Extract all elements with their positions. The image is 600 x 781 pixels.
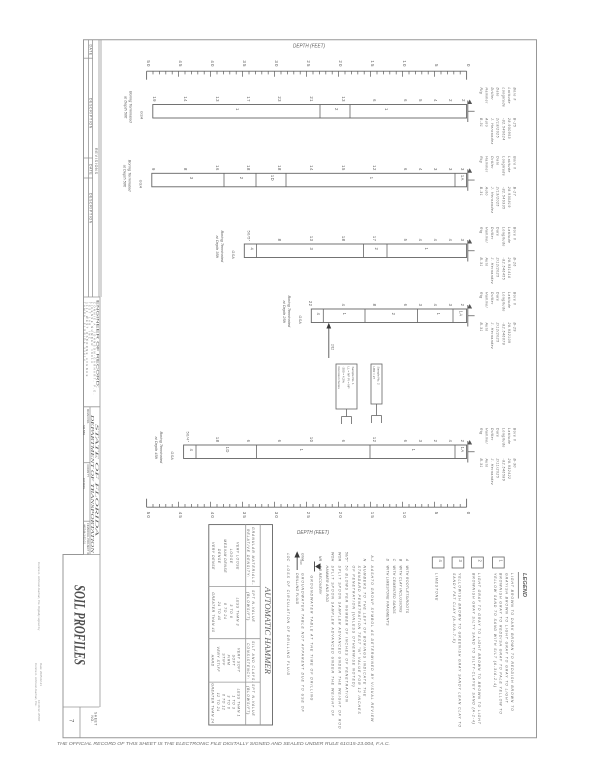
svg-text:B-31: B-31 <box>479 459 483 468</box>
svg-text:Date: Date <box>496 292 500 301</box>
svg-text:0: 0 <box>466 512 471 516</box>
svg-text:DRILLING FLUID: DRILLING FLUID <box>295 573 299 605</box>
svg-text:NO RECOVERY: NO RECOVERY <box>318 566 322 595</box>
svg-text:Hammer: Hammer <box>485 88 489 105</box>
svg-text:18: 18 <box>246 165 251 171</box>
svg-text:SANDY FAT CLAY (A-6/A-7-6): SANDY FAT CLAY (A-6/A-7-6) <box>452 573 456 644</box>
svg-text:-82.546455: -82.546455 <box>501 258 505 281</box>
svg-text:28.931416: 28.931416 <box>507 257 511 279</box>
svg-text:ROAD NO.: ROAD NO. <box>86 409 90 424</box>
svg-text:COUNTY: COUNTY <box>86 465 90 478</box>
svg-text:2: 2 <box>461 99 466 102</box>
svg-text:Date: Date <box>496 428 500 437</box>
svg-text:2: 2 <box>433 440 438 443</box>
svg-text:3: 3 <box>433 168 438 171</box>
svg-text:Hammer: Hammer <box>485 227 489 244</box>
svg-text:21: 21 <box>309 96 314 102</box>
svg-text:GSA: GSA <box>231 251 235 260</box>
svg-text:WITH CLAY INCLUSIONS: WITH CLAY INCLUSIONS <box>398 566 402 613</box>
svg-text:SPLIT SPOON SAMPLER ADVANCED U: SPLIT SPOON SAMPLER ADVANCED UNDER THE W… <box>337 566 341 730</box>
svg-text:15: 15 <box>341 165 346 171</box>
svg-text:8: 8 <box>372 304 377 307</box>
svg-text:Longitude: Longitude <box>501 428 505 448</box>
svg-text:REVISIONS: REVISIONS <box>94 148 98 175</box>
svg-text:GREATER THAN 40: GREATER THAN 40 <box>211 592 215 632</box>
svg-text:19: 19 <box>152 96 157 102</box>
svg-text:FIRM: FIRM <box>226 655 230 666</box>
svg-text:2: 2 <box>391 313 396 316</box>
svg-text:SPLIT SPOON SAMPLER ADVANCED U: SPLIT SPOON SAMPLER ADVANCED UNDER THE W… <box>330 566 334 717</box>
svg-text:5: 5 <box>434 512 439 516</box>
svg-text:2/18/2025: 2/18/2025 <box>496 117 500 138</box>
svg-text:40: 40 <box>210 60 215 67</box>
svg-text:Rig: Rig <box>479 428 483 435</box>
svg-text:WITH ROOTLETS/ROOTS: WITH ROOTLETS/ROOTS <box>405 566 409 614</box>
svg-text:Rig: Rig <box>479 156 483 163</box>
svg-text:28.932422: 28.932422 <box>507 458 511 480</box>
svg-text:(BLOWS/FT): (BLOWS/FT) <box>246 686 250 715</box>
svg-text:LEGEND: LEGEND <box>521 573 527 597</box>
svg-text:MEDIUM DENSE: MEDIUM DENSE <box>223 539 227 573</box>
svg-text:2: 2 <box>334 108 339 111</box>
svg-text:24 TO 40: 24 TO 40 <box>217 601 221 621</box>
svg-text:Hammer: Hammer <box>485 156 489 173</box>
svg-text:-82.546624: -82.546624 <box>501 118 505 141</box>
svg-text:J. Hernandez: J. Hernandez <box>490 186 494 214</box>
svg-text:LBR = 27: LBR = 27 <box>372 367 376 380</box>
svg-text:B-31: B-31 <box>479 118 483 127</box>
svg-text:50/4": 50/4" <box>185 432 190 443</box>
svg-text:LOC: LOC <box>286 553 290 561</box>
svg-text:3: 3 <box>418 304 423 307</box>
svg-text:10: 10 <box>402 60 407 67</box>
svg-text:J. Hernandez: J. Hernandez <box>490 257 494 285</box>
svg-text:LESS THAN 3: LESS THAN 3 <box>235 598 239 626</box>
svg-text:Date: Date <box>496 156 500 165</box>
svg-text:4: 4 <box>316 313 321 316</box>
svg-text:at Depth 25ft: at Depth 25ft <box>282 301 287 324</box>
svg-text:LIGHT BROWN TO DARK BROWN TO R: LIGHT BROWN TO DARK BROWN TO REDDISH BRO… <box>510 573 514 712</box>
svg-text:GREATER THAN 24: GREATER THAN 24 <box>210 683 214 723</box>
svg-text:3: 3 <box>189 177 194 180</box>
svg-text:3: 3 <box>460 168 465 171</box>
svg-text:-82.546335: -82.546335 <box>501 187 505 210</box>
svg-text:35: 35 <box>242 60 247 67</box>
svg-text:Rig: Rig <box>479 292 483 299</box>
svg-text:14: 14 <box>309 165 314 171</box>
svg-text:GSA: GSA <box>139 111 143 120</box>
svg-text:2: 2 <box>460 440 465 443</box>
svg-text:Connie A. Johnson-Garhart, P.E: Connie A. Johnson-Garhart, P.E. Digitall… <box>37 562 41 631</box>
svg-text:1: 1 <box>436 313 441 316</box>
svg-text:16: 16 <box>215 165 220 171</box>
svg-text:Hammer: Hammer <box>485 292 489 309</box>
svg-text:Date: 2025.02.21: Date: 2025.02.21 <box>39 663 43 686</box>
svg-text:DEPTH (FEET): DEPTH (FEET) <box>293 44 325 50</box>
svg-text:Sample No. 1: Sample No. 1 <box>351 367 355 386</box>
svg-text:8: 8 <box>277 239 282 242</box>
svg-text:40: 40 <box>210 512 215 519</box>
svg-text:D: D <box>385 559 389 562</box>
svg-text:Rig: Rig <box>479 88 483 95</box>
svg-text:DESCRIPTION: DESCRIPTION <box>89 193 93 224</box>
svg-text:LOOSE: LOOSE <box>229 549 233 564</box>
svg-text:28.932109: 28.932109 <box>507 322 511 344</box>
svg-text:DATE: DATE <box>89 164 93 175</box>
svg-text:4: 4 <box>341 304 346 307</box>
svg-text:STATE OF FLORIDA: STATE OF FLORIDA <box>95 424 99 538</box>
svg-text:Auto: Auto <box>485 458 489 468</box>
svg-text:NUMBERS TO THE LEFT OF BORINGS: NUMBERS TO THE LEFT OF BORINGS INDICATE … <box>362 566 366 698</box>
svg-text:30: 30 <box>274 60 279 67</box>
svg-text:WOH: WOH <box>330 552 334 562</box>
svg-text:Latitude: Latitude <box>507 292 511 308</box>
svg-text:CITRUS: CITRUS <box>82 478 86 489</box>
svg-text:Bore #: Bore # <box>513 156 517 169</box>
svg-text:13: 13 <box>215 96 220 102</box>
svg-text:SPT N-VALUE: SPT N-VALUE <box>251 684 255 717</box>
svg-text:LESS THAN 1: LESS THAN 1 <box>236 689 240 717</box>
svg-text:15: 15 <box>370 512 375 519</box>
svg-text:2/12: 2/12 <box>331 344 335 350</box>
svg-text:45: 45 <box>178 512 183 519</box>
svg-text:5: 5 <box>403 239 408 242</box>
svg-text:1: 1 <box>342 313 347 316</box>
svg-text:4: 4 <box>418 239 423 242</box>
svg-text:YELLOWISH BROWN TO GREENISH GR: YELLOWISH BROWN TO GREENISH GRAY SANDY L… <box>457 573 461 728</box>
svg-text:GSA: GSA <box>170 452 174 461</box>
svg-text:50: 50 <box>146 60 151 67</box>
svg-text:20: 20 <box>338 60 343 67</box>
svg-text:Driller: Driller <box>490 428 494 441</box>
svg-text:-82.546078: -82.546078 <box>501 323 505 346</box>
svg-text:1: 1 <box>235 108 240 111</box>
svg-text:1A: 1A <box>459 311 464 317</box>
svg-text:GRAYISH BROWN TO LIGHT GRAY TO: GRAYISH BROWN TO LIGHT GRAY TO GRAY TO L… <box>504 573 508 704</box>
svg-text:8: 8 <box>183 168 188 171</box>
svg-text:GSA: GSA <box>298 316 302 325</box>
svg-text:Driller: Driller <box>490 227 494 240</box>
svg-text:1D: 1D <box>270 175 275 181</box>
svg-text:SILT AND CLAYS-: SILT AND CLAYS- <box>251 641 255 683</box>
svg-text:6 TO 12: 6 TO 12 <box>221 694 225 710</box>
svg-text:DEPTH (FEET): DEPTH (FEET) <box>297 530 329 536</box>
svg-text:Driller: Driller <box>490 292 494 305</box>
svg-text:GROUNDWATER TABLE NOT APPARENT: GROUNDWATER TABLE NOT APPARENT DUE TO US… <box>300 573 304 713</box>
svg-text:B-29: B-29 <box>513 323 517 332</box>
svg-text:GSA: GSA <box>138 180 142 189</box>
svg-text:6: 6 <box>403 440 408 443</box>
svg-text:B-31: B-31 <box>479 323 483 332</box>
svg-text:50: 50 <box>146 512 151 519</box>
svg-text:at Depth 50ft: at Depth 50ft <box>123 96 128 119</box>
svg-text:Bore #: Bore # <box>513 428 517 441</box>
svg-text:SR 589: SR 589 <box>82 425 86 435</box>
svg-text:CONSISTENCY:: CONSISTENCY: <box>246 643 250 680</box>
svg-text:Rig: Rig <box>479 227 483 234</box>
svg-text:Corrosion Series: Corrosion Series <box>337 367 341 390</box>
svg-text:6: 6 <box>246 440 251 443</box>
svg-text:Latitude: Latitude <box>507 227 511 243</box>
svg-text:50/5": 50/5" <box>344 552 348 562</box>
svg-text:6: 6 <box>403 99 408 102</box>
svg-text:SOIL PROFILES: SOIL PROFILES <box>70 585 87 665</box>
svg-text:VERY DENSE: VERY DENSE <box>211 542 215 570</box>
svg-text:VERY STIFF: VERY STIFF <box>216 647 220 673</box>
svg-text:Sample No. 2: Sample No. 2 <box>377 367 381 386</box>
svg-text:20: 20 <box>338 512 343 519</box>
svg-text:1: 1 <box>411 449 416 452</box>
svg-text:15: 15 <box>370 60 375 67</box>
svg-text:SPT N-VALUE: SPT N-VALUE <box>251 590 255 623</box>
svg-text:WITH CEMENTED SANDS: WITH CEMENTED SANDS <box>392 566 396 615</box>
svg-text:VERY SOFT: VERY SOFT <box>236 648 240 673</box>
svg-text:4: 4 <box>189 449 194 452</box>
svg-text:-82.546589: -82.546589 <box>501 459 505 482</box>
svg-text:Longitude: Longitude <box>501 88 505 108</box>
svg-text:Date: Date <box>496 227 500 236</box>
svg-text:B-27: B-27 <box>513 187 517 196</box>
svg-text:6: 6 <box>403 168 408 171</box>
svg-text:AASHTO GROUP SYMBOL AS DETERMI: AASHTO GROUP SYMBOL AS DETERMINED BY VIS… <box>370 565 374 723</box>
svg-text:1: 1 <box>299 449 304 452</box>
svg-text:4: 4 <box>418 168 423 171</box>
svg-text:2: 2 <box>239 177 244 180</box>
svg-text:440744-3-52-01: 440744-3-52-01 <box>82 524 86 544</box>
svg-text:DESCRIPTION: DESCRIPTION <box>89 98 93 129</box>
svg-text:2: 2 <box>460 304 465 307</box>
svg-text:35: 35 <box>242 512 247 519</box>
svg-text:VERY LOOSE: VERY LOOSE <box>235 542 239 570</box>
svg-text:2/13/2025: 2/13/2025 <box>496 186 500 207</box>
svg-text:0: 0 <box>466 64 471 68</box>
svg-text:12: 12 <box>372 165 377 171</box>
svg-text:13: 13 <box>341 96 346 102</box>
svg-text:1: 1 <box>369 177 374 180</box>
svg-text:6: 6 <box>403 304 408 307</box>
svg-text:1: 1 <box>424 248 429 251</box>
svg-text:28.930819: 28.930819 <box>507 186 511 208</box>
svg-text:3: 3 <box>460 239 465 242</box>
svg-text:at Depth 45ft: at Depth 45ft <box>154 437 159 460</box>
svg-text:Driller: Driller <box>490 156 494 169</box>
svg-text:25: 25 <box>306 512 311 519</box>
svg-text:LOSS OF CIRCULATION OF DRILLIN: LOSS OF CIRCULATION OF DRILLING FLUID <box>286 566 290 677</box>
svg-text:1 TO 3: 1 TO 3 <box>231 695 235 709</box>
svg-text:HAMMER AND ROD: HAMMER AND ROD <box>325 566 329 603</box>
svg-text:18: 18 <box>277 165 282 171</box>
svg-text:B-31: B-31 <box>479 258 483 267</box>
svg-text:DEPARTMENT OF TRANSPORTATION: DEPARTMENT OF TRANSPORTATION <box>90 413 94 554</box>
svg-text:12: 12 <box>372 437 377 443</box>
svg-text:STIFF: STIFF <box>221 653 225 666</box>
svg-text:1A: 1A <box>460 175 465 181</box>
svg-text:LIGHT GRAY TO GRAY TO LIGHT BR: LIGHT GRAY TO GRAY TO LIGHT BROWN TO BRO… <box>477 573 481 725</box>
svg-text:B-31: B-31 <box>479 187 483 196</box>
svg-text:1D: 1D <box>225 447 230 453</box>
svg-text:J. Hernandez: J. Hernandez <box>490 458 494 486</box>
svg-text:-200 = 4.2%: -200 = 4.2% <box>342 367 346 384</box>
svg-text:B-26: B-26 <box>513 258 517 267</box>
svg-text:A-J: A-J <box>370 554 374 561</box>
svg-text:AUTOMATIC HAMMER: AUTOMATIC HAMMER <box>263 586 272 674</box>
svg-text:4: 4 <box>448 239 453 242</box>
svg-text:WITH LIMESTONE FRAGMENTS: WITH LIMESTONE FRAGMENTS <box>385 566 389 627</box>
svg-text:OF PENETRATION (UNLESS OTHERWI: OF PENETRATION (UNLESS OTHERWISE NOTED) <box>351 566 355 688</box>
svg-text:3 TO 6: 3 TO 6 <box>226 695 230 709</box>
svg-text:45: 45 <box>178 60 183 67</box>
svg-text:RELATIVE DENSITY:: RELATIVE DENSITY: <box>246 529 250 578</box>
svg-text:6: 6 <box>341 440 346 443</box>
svg-text:A: A <box>405 558 409 562</box>
svg-text:23: 23 <box>277 96 282 102</box>
svg-text:22: 22 <box>308 301 313 307</box>
svg-text:Hammer: Hammer <box>485 428 489 445</box>
svg-text:HARD: HARD <box>210 655 214 667</box>
svg-text:NR: NR <box>318 556 322 562</box>
svg-text:17: 17 <box>372 236 377 242</box>
svg-text:J. Hernandez: J. Hernandez <box>490 117 494 145</box>
svg-text:10:46:32 -05'00': 10:46:32 -05'00' <box>37 700 41 722</box>
svg-text:6: 6 <box>372 99 377 102</box>
svg-text:13: 13 <box>309 236 314 242</box>
svg-text:5: 5 <box>434 64 439 68</box>
svg-text:4: 4 <box>250 248 255 251</box>
svg-text:Latitude: Latitude <box>507 156 511 172</box>
svg-text:1A: 1A <box>460 447 465 453</box>
svg-text:18: 18 <box>215 437 220 443</box>
svg-text:30: 30 <box>274 512 279 519</box>
svg-text:YELLOW SAND TO SAND WITH SILT: YELLOW SAND TO SAND WITH SILT (A-3/A-2-4… <box>493 573 497 688</box>
svg-text:B-30: B-30 <box>513 459 517 468</box>
svg-text:28.930953: 28.930953 <box>507 117 511 139</box>
svg-text:WOR: WOR <box>337 552 341 562</box>
svg-text:17: 17 <box>246 96 251 102</box>
svg-text:3: 3 <box>309 248 314 251</box>
svg-text:TAMPA, FLORIDA 33614: TAMPA, FLORIDA 33614 <box>82 302 86 362</box>
svg-text:B-25: B-25 <box>513 118 517 127</box>
svg-text:18: 18 <box>341 236 346 242</box>
svg-text:Bore #: Bore # <box>513 227 517 240</box>
svg-text:GROUNDWATER TABLE AT THE TIME: GROUNDWATER TABLE AT THE TIME OF DRILLIN… <box>309 576 313 702</box>
svg-text:N: N <box>362 559 366 562</box>
svg-text:Bore #: Bore # <box>513 292 517 305</box>
svg-text:8 TO 24: 8 TO 24 <box>223 603 227 619</box>
svg-text:C: C <box>392 559 396 562</box>
svg-text:4: 4 <box>433 239 438 242</box>
svg-text:3: 3 <box>418 440 423 443</box>
svg-text:10: 10 <box>309 437 314 443</box>
svg-text:Longitude: Longitude <box>501 156 505 176</box>
svg-text:Driller: Driller <box>490 88 494 101</box>
svg-text:GRANULAR MATERIALS-: GRANULAR MATERIALS- <box>251 527 255 585</box>
svg-text:9: 9 <box>151 168 156 171</box>
svg-text:6: 6 <box>277 440 282 443</box>
svg-text:LL = NP PI = NP: LL = NP PI = NP <box>346 367 350 389</box>
svg-text:BROWNISH GRAY SILTY SAND TO SI: BROWNISH GRAY SILTY SAND TO SILTY-CLAYEY… <box>471 573 475 725</box>
svg-text:3: 3 <box>448 168 453 171</box>
svg-text:(BLOWS/FT): (BLOWS/FT) <box>246 592 250 621</box>
svg-text:Latitude: Latitude <box>507 428 511 444</box>
svg-text:at Depth 35ft: at Depth 35ft <box>215 236 220 259</box>
svg-text:1: 1 <box>384 108 389 111</box>
svg-text:Auto: Auto <box>485 186 489 196</box>
svg-text:Latitude: Latitude <box>507 88 511 104</box>
svg-text:12 TO 24: 12 TO 24 <box>216 693 220 712</box>
svg-text:Auto: Auto <box>485 117 489 127</box>
svg-text:4: 4 <box>433 99 438 102</box>
svg-text:10: 10 <box>402 512 407 519</box>
svg-text:BROWNISH GRAY TO REDDISH GRAY: BROWNISH GRAY TO REDDISH GRAY TO PALE YE… <box>499 573 503 715</box>
svg-text:Bore #: Bore # <box>513 88 517 101</box>
svg-text:LIMESTONE: LIMESTONE <box>435 573 439 601</box>
svg-text:2/18: 2/18 <box>299 560 303 566</box>
svg-text:Longitude: Longitude <box>501 292 505 312</box>
svg-text:3 TO 8: 3 TO 8 <box>229 604 233 618</box>
svg-text:Longitude: Longitude <box>501 227 505 247</box>
svg-text:NO.: NO. <box>90 716 94 724</box>
svg-text:Auto: Auto <box>485 322 489 332</box>
svg-text:2/11/2025: 2/11/2025 <box>496 458 500 479</box>
svg-text:4: 4 <box>433 304 438 307</box>
svg-text:50/5": 50/5" <box>246 231 251 242</box>
svg-text:B: B <box>398 559 402 562</box>
svg-text:DATE: DATE <box>89 45 93 56</box>
svg-text:2/12/2025: 2/12/2025 <box>496 257 500 278</box>
svg-text:J. Hernandez: J. Hernandez <box>490 322 494 350</box>
svg-text:4: 4 <box>448 440 453 443</box>
svg-text:25: 25 <box>306 60 311 67</box>
svg-text:STANDARD PENETRATION TEST "N": STANDARD PENETRATION TEST "N" VALUE FOR … <box>357 566 361 715</box>
svg-text:2: 2 <box>374 248 379 251</box>
svg-text:at Depth 50ft: at Depth 50ft <box>122 165 127 188</box>
svg-text:14: 14 <box>183 96 188 102</box>
svg-text:Auto: Auto <box>485 257 489 267</box>
svg-text:Date: Date <box>496 88 500 97</box>
svg-text:2: 2 <box>448 99 453 102</box>
svg-text:3: 3 <box>448 304 453 307</box>
svg-text:DENSE: DENSE <box>217 549 221 564</box>
svg-text:5: 5 <box>418 99 423 102</box>
svg-text:2/12/2025: 2/12/2025 <box>496 322 500 343</box>
svg-text:50 BLOWS PER NUMBER OF INCHES: 50 BLOWS PER NUMBER OF INCHES OF PENETRA… <box>344 566 348 703</box>
svg-text:SOFT: SOFT <box>231 655 235 667</box>
svg-text:THE OFFICIAL RECORD OF THIS SH: THE OFFICIAL RECORD OF THIS SHEET IS THE… <box>57 741 390 746</box>
